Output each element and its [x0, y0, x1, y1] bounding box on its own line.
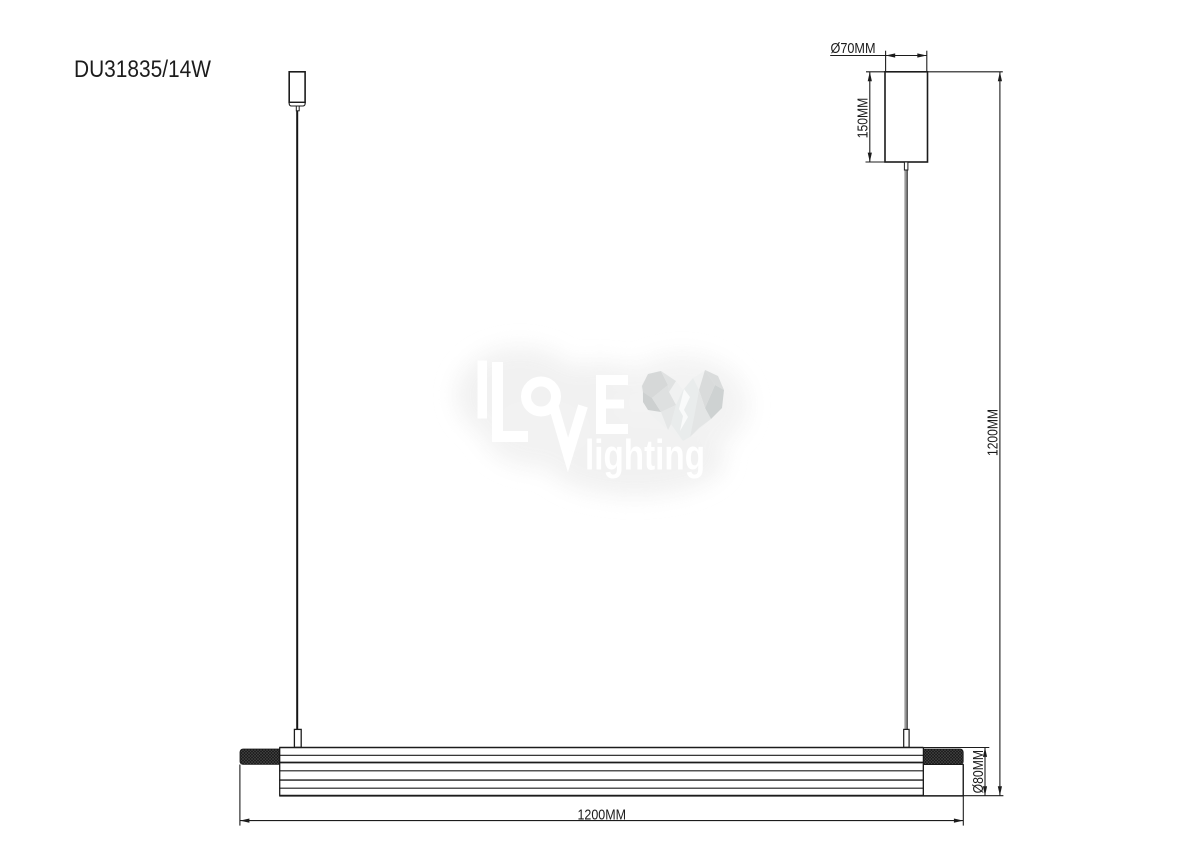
svg-text:Ø70MM: Ø70MM [831, 40, 876, 57]
svg-text:lighting: lighting [585, 432, 705, 480]
svg-text:1200MM: 1200MM [985, 409, 1002, 456]
svg-text:150MM: 150MM [855, 98, 872, 139]
svg-text:DU31835/14W: DU31835/14W [74, 56, 211, 83]
svg-text:1200MM: 1200MM [578, 806, 627, 823]
svg-text:Ø80MM: Ø80MM [970, 750, 987, 793]
